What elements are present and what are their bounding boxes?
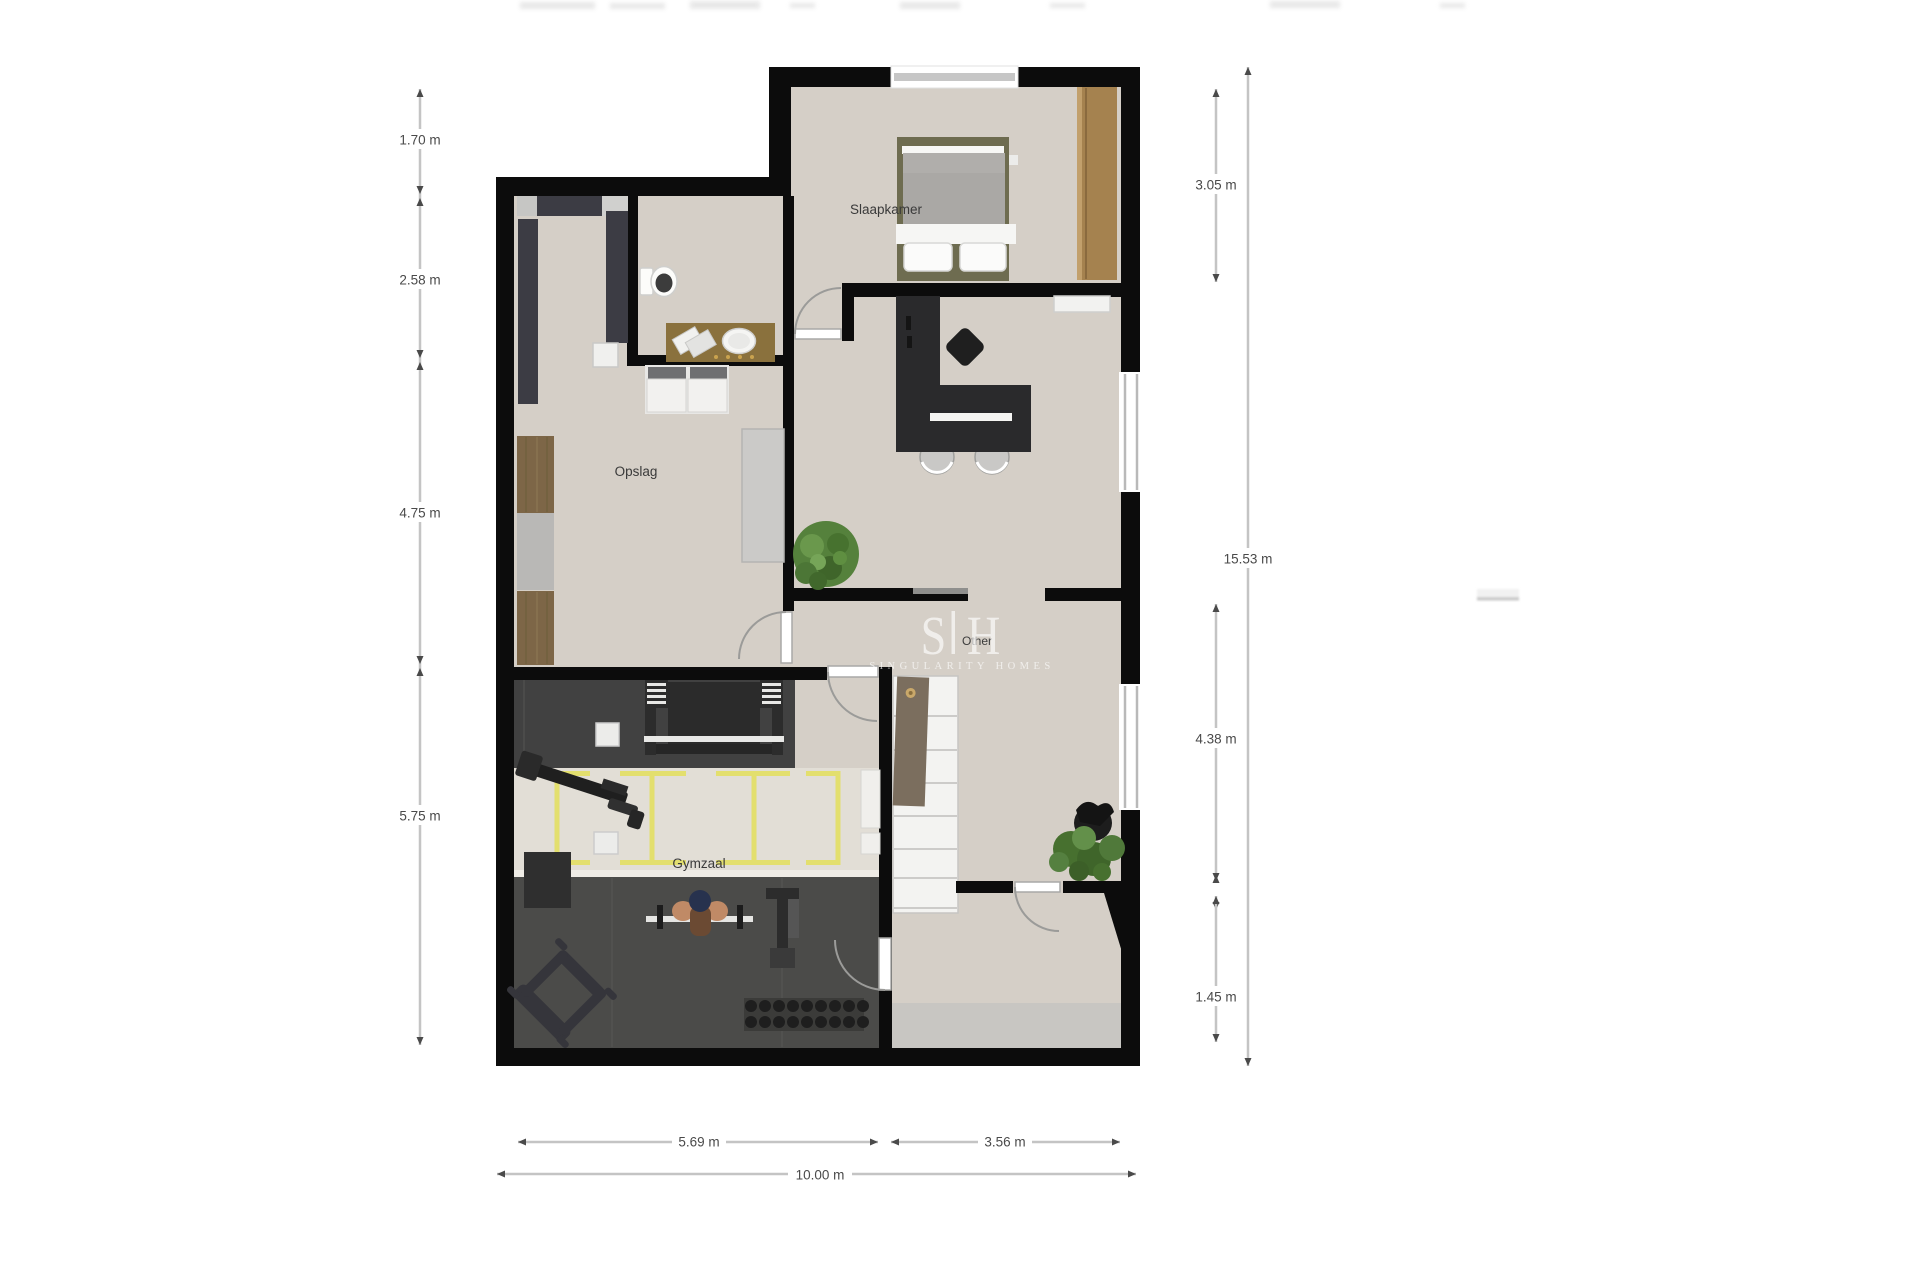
svg-text:SINGULARITY HOMES: SINGULARITY HOMES	[869, 661, 1054, 672]
svg-text:Opslag: Opslag	[615, 464, 658, 479]
svg-text:10.00 m: 10.00 m	[796, 1168, 845, 1183]
svg-text:Slaapkamer: Slaapkamer	[850, 202, 923, 217]
svg-text:5.69 m: 5.69 m	[678, 1135, 719, 1150]
svg-text:2.58 m: 2.58 m	[399, 273, 440, 288]
svg-text:4.75 m: 4.75 m	[399, 506, 440, 521]
svg-text:15.53 m: 15.53 m	[1224, 552, 1273, 567]
svg-text:S: S	[921, 605, 947, 666]
svg-text:4.38 m: 4.38 m	[1195, 732, 1236, 747]
svg-text:1.45 m: 1.45 m	[1195, 990, 1236, 1005]
svg-text:1.70 m: 1.70 m	[399, 133, 440, 148]
svg-text:3.05 m: 3.05 m	[1195, 178, 1236, 193]
svg-text:5.75 m: 5.75 m	[399, 809, 440, 824]
svg-text:H: H	[967, 605, 1000, 666]
svg-text:Gymzaal: Gymzaal	[672, 856, 725, 871]
svg-text:3.56 m: 3.56 m	[984, 1135, 1025, 1150]
